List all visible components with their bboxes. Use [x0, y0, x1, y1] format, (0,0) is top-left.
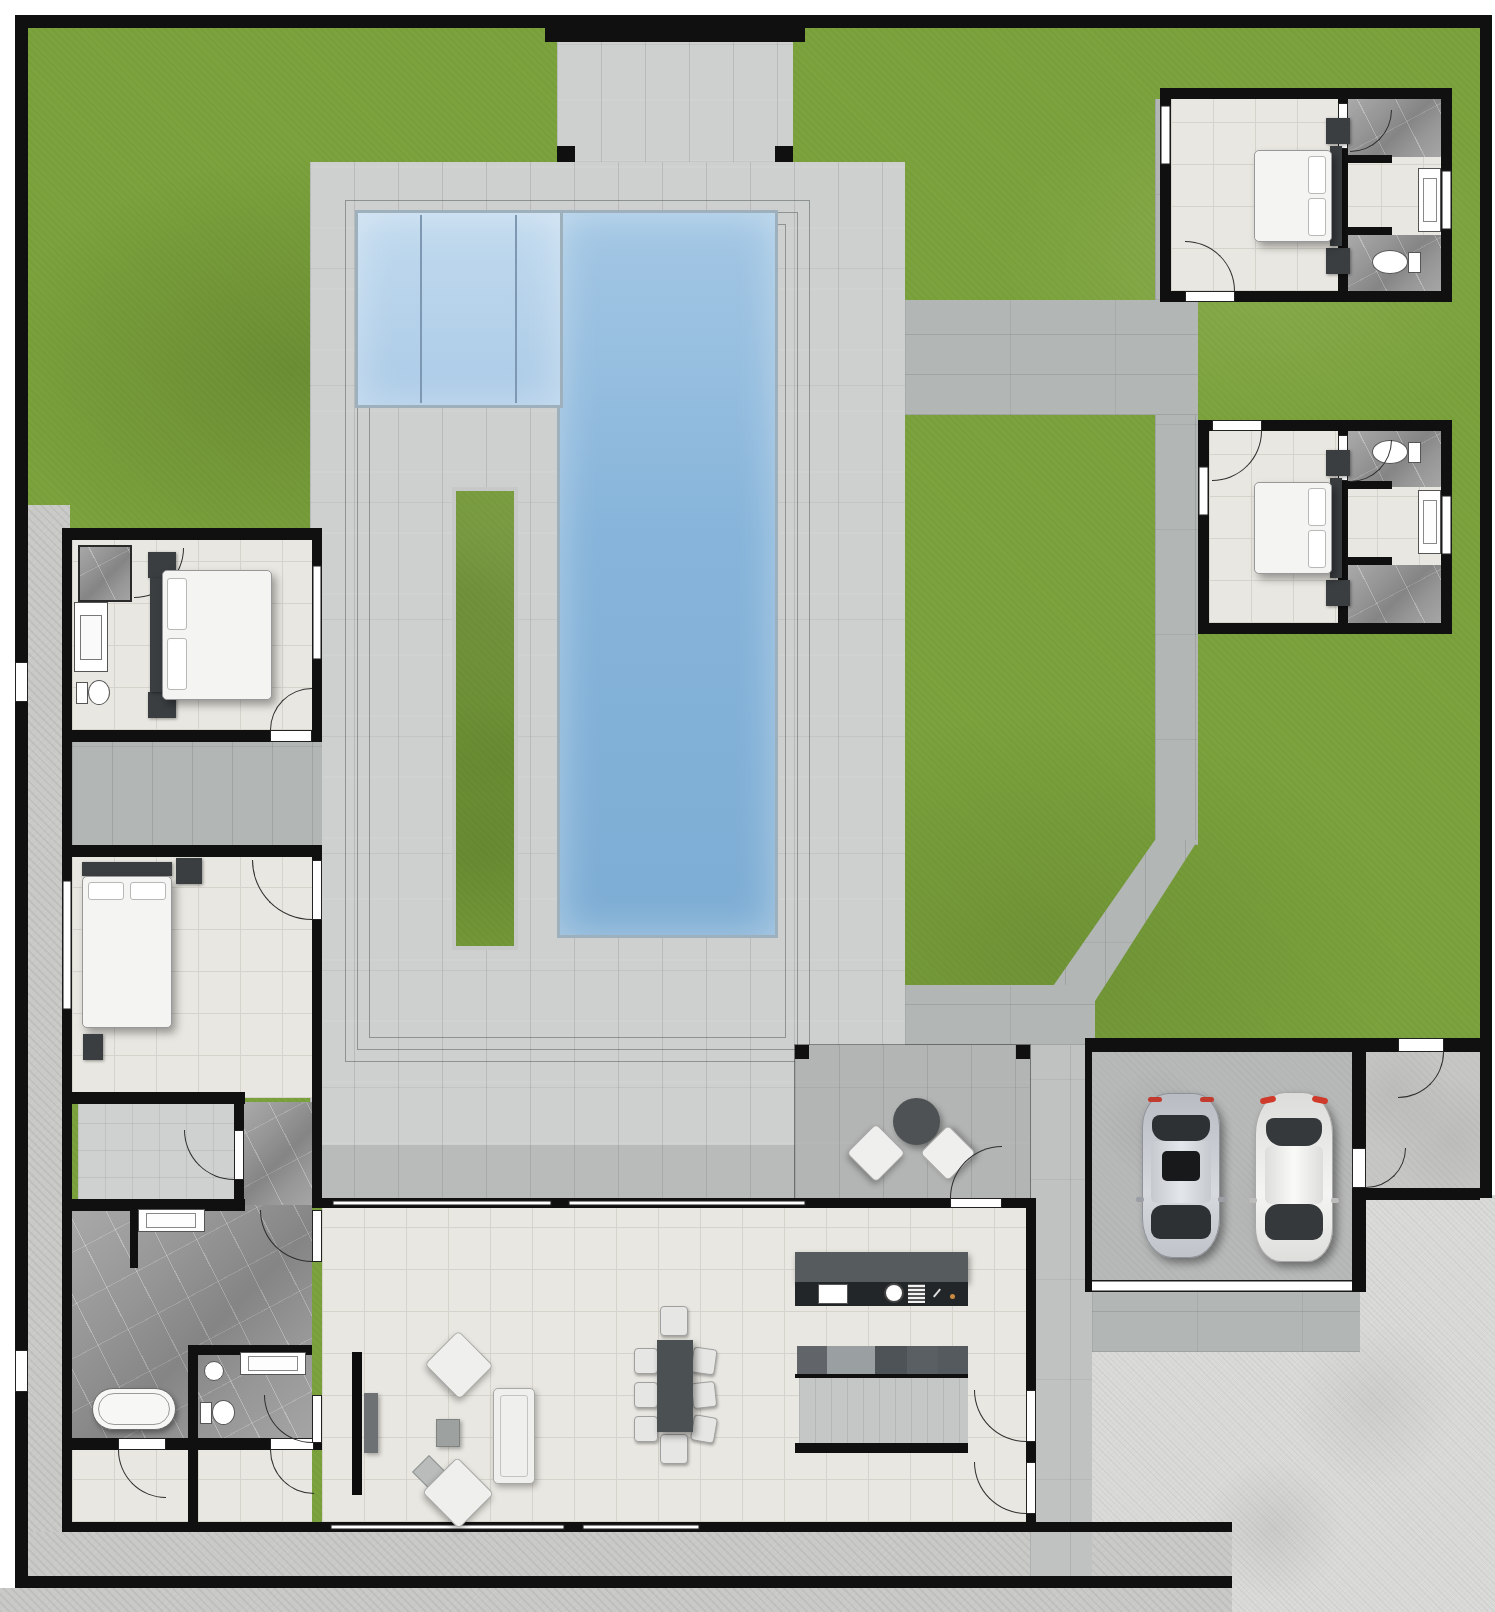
bath-col-floor — [244, 1102, 312, 1205]
bathtub-inner — [98, 1393, 170, 1425]
porch-pier — [557, 146, 575, 162]
nightstand — [176, 858, 202, 884]
pool-lane-line — [515, 215, 517, 403]
sidewalk-bottom — [0, 1588, 1232, 1612]
dining-table — [657, 1340, 693, 1432]
car-rear-window — [1266, 1118, 1322, 1146]
pillow — [130, 882, 166, 900]
car-tail-light — [1200, 1097, 1214, 1102]
counter-seg — [907, 1346, 938, 1374]
utensil — [950, 1294, 955, 1299]
boundary-wall-top — [15, 15, 1492, 28]
coffee-table — [436, 1419, 460, 1447]
suite-2-stub — [1348, 481, 1392, 489]
living-window-south — [330, 1524, 565, 1530]
suite-2-basin — [1423, 500, 1437, 544]
wall — [188, 1355, 198, 1445]
dining-chair — [634, 1382, 658, 1408]
dining-chair — [660, 1306, 688, 1336]
bath-vanity-basin — [146, 1213, 196, 1228]
dining-chair — [634, 1416, 658, 1442]
pillow — [1308, 156, 1326, 194]
tv-console — [364, 1393, 378, 1453]
pantry-wall — [795, 1443, 968, 1453]
counter-seg — [875, 1346, 907, 1374]
entry-porch — [557, 40, 793, 162]
suite-1-stub — [1348, 155, 1392, 163]
storage-wall-bottom — [1366, 1188, 1480, 1200]
suite-path-lower — [1155, 415, 1198, 845]
porch-wall — [545, 28, 805, 42]
garage-door — [1092, 1280, 1352, 1292]
living-east-door-gap — [1026, 1462, 1036, 1514]
pillow — [88, 882, 124, 900]
wall — [62, 1092, 245, 1104]
walkway-east — [1030, 1045, 1092, 1580]
car-mirror — [1331, 1198, 1339, 1203]
car-windshield — [1265, 1204, 1323, 1240]
wall — [62, 528, 322, 540]
counter-seg — [827, 1346, 875, 1374]
site-plan — [0, 0, 1495, 1612]
suite-2-entry-gap — [1212, 420, 1262, 431]
kitchen-sink — [818, 1284, 848, 1304]
cooktop-burner — [884, 1283, 904, 1303]
vanity-basin — [80, 615, 102, 660]
suite-1-stub — [1348, 227, 1392, 235]
wall — [62, 845, 322, 857]
patio-post — [1016, 1045, 1030, 1059]
bedroom-2-door-gap — [312, 860, 322, 920]
path-to-garage — [905, 985, 1095, 1045]
suite-1-window — [1441, 170, 1452, 230]
suite-1-window — [1160, 105, 1171, 165]
bed-headboard — [150, 578, 162, 692]
nightstand — [1326, 248, 1350, 274]
wc-door-gap — [312, 1395, 322, 1443]
toilet-bowl — [1372, 250, 1408, 274]
garage-wall-left — [1085, 1052, 1092, 1292]
shower — [78, 545, 132, 602]
wall — [188, 1450, 198, 1522]
kitchen-patio-door-gap — [950, 1198, 1002, 1208]
sliding-glass-door — [332, 1200, 552, 1206]
dining-chair — [690, 1346, 717, 1375]
patio-post — [795, 1045, 809, 1059]
cooktop-grill — [908, 1284, 925, 1303]
dining-chair — [660, 1434, 688, 1464]
bed-headboard — [82, 862, 172, 876]
pillow — [1308, 198, 1326, 236]
toilet-bowl — [88, 680, 110, 705]
garage-storage-door-gap — [1352, 1148, 1366, 1188]
wc-vanity-basin — [248, 1356, 298, 1371]
pool-shallow-ledge — [358, 213, 560, 405]
car-mirror — [1249, 1198, 1257, 1203]
dining-chair — [634, 1348, 658, 1374]
toilet-tank — [200, 1402, 212, 1424]
car-suv — [1142, 1093, 1220, 1258]
car-windshield — [1151, 1205, 1211, 1239]
nightstand — [1326, 118, 1350, 144]
toilet-tank — [1408, 252, 1421, 273]
sofa-seat-line — [500, 1395, 528, 1477]
nightstand — [1326, 580, 1350, 606]
pillow — [167, 638, 187, 690]
planter-strip — [452, 487, 518, 950]
porch-pier — [775, 146, 793, 162]
car-sunroof — [1162, 1151, 1200, 1181]
dining-chair — [691, 1381, 718, 1409]
tv — [352, 1352, 362, 1495]
pool-lane-line — [420, 215, 422, 403]
suite-2-stub — [1348, 557, 1392, 565]
sliding-glass-door — [568, 1200, 806, 1206]
car-sedan — [1255, 1092, 1333, 1262]
toilet-tank — [1408, 442, 1421, 463]
bench — [83, 1034, 103, 1060]
bedroom-2-window — [62, 880, 72, 1010]
living-window-south — [582, 1524, 700, 1530]
side-gate — [15, 662, 28, 702]
utility-1-door-gap — [118, 1438, 166, 1450]
pantry-floor — [799, 1378, 968, 1443]
toilet-tank — [76, 682, 88, 704]
suite-2-shower — [1348, 565, 1441, 623]
storage-entry-gap — [1398, 1038, 1444, 1052]
bedroom-1-window — [312, 565, 322, 660]
dining-chair — [690, 1414, 718, 1444]
kitchen-island-top — [795, 1252, 968, 1282]
car-mirror — [1218, 1197, 1226, 1202]
bath-door-gap — [312, 1210, 322, 1262]
suite-1-basin — [1423, 178, 1437, 222]
pillow — [167, 578, 187, 630]
corridor-opening — [312, 742, 322, 852]
wall — [62, 528, 72, 1532]
car-roof — [1265, 1146, 1323, 1204]
boundary-wall-right — [1480, 15, 1492, 1198]
corridor-floor — [72, 742, 312, 852]
suite-2-window — [1441, 495, 1452, 555]
living-east-door-gap — [1026, 1390, 1036, 1442]
side-gate — [15, 1350, 28, 1392]
car-rear-window — [1152, 1115, 1210, 1141]
car-mirror — [1136, 1197, 1144, 1202]
pillow — [1308, 530, 1326, 568]
walkway-under-garage — [1092, 1292, 1360, 1352]
boundary-wall-bottom — [15, 1576, 1232, 1588]
bedroom-1-door-gap — [270, 730, 312, 742]
pool-main — [560, 213, 775, 935]
suite-2-window — [1198, 466, 1209, 516]
car-tail-light — [1148, 1097, 1162, 1102]
pillow — [1308, 488, 1326, 526]
wc-sink-round — [204, 1361, 224, 1381]
nightstand — [1326, 450, 1350, 476]
path-to-suites — [905, 300, 1198, 415]
suite-1-entry-gap — [1185, 291, 1235, 302]
vanity-stub-wall — [130, 1211, 138, 1268]
closet-door-gap — [234, 1130, 244, 1180]
toilet-bowl — [212, 1400, 235, 1425]
counter-seg — [797, 1346, 827, 1374]
counter-seg — [938, 1346, 968, 1374]
